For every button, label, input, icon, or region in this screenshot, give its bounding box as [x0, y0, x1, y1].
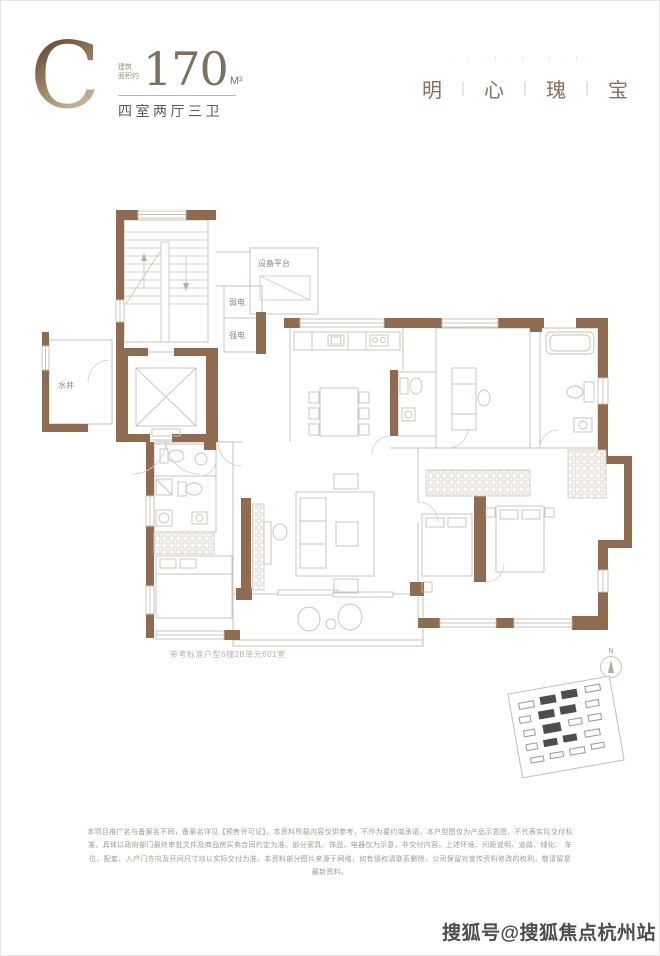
slogan-block: · ı · ı · ı · ı · ı · 明 丨 心 丨 瑰 丨 宝 — [420, 56, 630, 103]
site-plan-building — [584, 683, 601, 693]
equipment-platform-label: 设备平台 — [258, 258, 290, 268]
water-well-label: 水井 — [58, 380, 74, 390]
disclaimer: 本项目推广名与备案名不同，备案名详见【预售许可证】。本资料所载内容仅供参考，不作… — [86, 826, 574, 879]
slogan-separator: 丨 — [582, 77, 593, 99]
site-plan-building — [584, 728, 601, 738]
site-plan-building — [543, 738, 558, 747]
site-plan-building — [518, 700, 535, 710]
area-prefix-line1: 建筑 — [118, 63, 139, 72]
site-plan-building — [542, 722, 561, 734]
balcony — [298, 604, 362, 631]
watermark: 搜狐号@搜狐焦点杭州站 — [442, 918, 656, 945]
poster-page: C 建筑 面积约 170 M² 四室两厅三卫 · ı · ı · ı · ı ·… — [0, 0, 660, 956]
slogan-separator: 丨 — [520, 77, 531, 99]
closets — [154, 450, 606, 590]
dining-area — [309, 388, 369, 436]
exterior-walls — [42, 210, 632, 640]
site-plan-building — [568, 717, 583, 726]
compass-needle-icon — [608, 660, 614, 673]
compass-north-label: N — [594, 648, 628, 655]
site-plan-building — [587, 713, 602, 722]
site-plan-building — [569, 746, 586, 756]
slogan-char-1: 明 — [422, 74, 442, 103]
slogan-char-3: 瑰 — [546, 74, 566, 103]
site-plan-building — [559, 704, 576, 715]
site-plan-building — [539, 694, 556, 705]
disclaimer-line1: 本项目推广名与备案名不同，备案名详见【预售许可证】。本资料所载内容仅供参考，不作… — [87, 829, 573, 849]
site-plan-building — [525, 742, 538, 751]
kitchen — [294, 332, 400, 350]
area-prefix-line2: 面积约 — [118, 72, 139, 81]
bedroom-master — [486, 506, 554, 572]
elevator — [136, 368, 196, 436]
compass-dial — [600, 656, 622, 678]
slogan-separator: 丨 — [458, 77, 469, 99]
slogan: 明 丨 心 丨 瑰 丨 宝 — [420, 74, 630, 103]
bedroom-middle — [422, 514, 472, 592]
site-plan-building — [549, 751, 564, 759]
study-room — [452, 368, 490, 430]
strong-electric-label: 强电 — [229, 330, 245, 340]
living-room — [264, 474, 374, 593]
layout-description: 四室两厅三卫 — [118, 101, 243, 121]
area-value: 170 — [143, 48, 228, 92]
slogan-char-2: 心 — [484, 74, 504, 103]
plan-caption: 参考标准户型6幢2B单元601室 — [170, 649, 286, 660]
site-plan-building — [561, 689, 578, 700]
area-block: 建筑 面积约 170 M² 四室两厅三卫 — [118, 48, 243, 121]
area-unit: M² — [230, 75, 243, 87]
floorplan: 设备平台 弱电 强电 水井 — [28, 192, 632, 658]
site-plan-building — [523, 728, 536, 737]
site-plan-building — [538, 709, 555, 720]
compass: N — [594, 648, 628, 678]
area-prefix: 建筑 面积约 — [118, 63, 139, 82]
slogan-tagline-marks: · ı · ı · ı · ı · ı · — [420, 56, 630, 62]
site-plan-building — [519, 715, 532, 724]
site-plan-building — [590, 742, 605, 750]
site-plan-inset — [507, 676, 624, 779]
weak-electric-label: 弱电 — [229, 297, 245, 307]
bedroom-left — [156, 556, 232, 618]
site-plan-building — [585, 699, 600, 708]
site-plan-building — [530, 755, 545, 763]
slogan-char-4: 宝 — [608, 74, 628, 103]
equipment-platform-unit — [260, 276, 310, 300]
partition-lines — [49, 220, 608, 646]
bathrooms — [156, 332, 594, 526]
room-labels: 设备平台 弱电 强电 水井 — [58, 258, 290, 390]
stairs — [124, 232, 208, 342]
site-plan-building — [562, 733, 577, 742]
unit-letter: C — [30, 30, 100, 122]
